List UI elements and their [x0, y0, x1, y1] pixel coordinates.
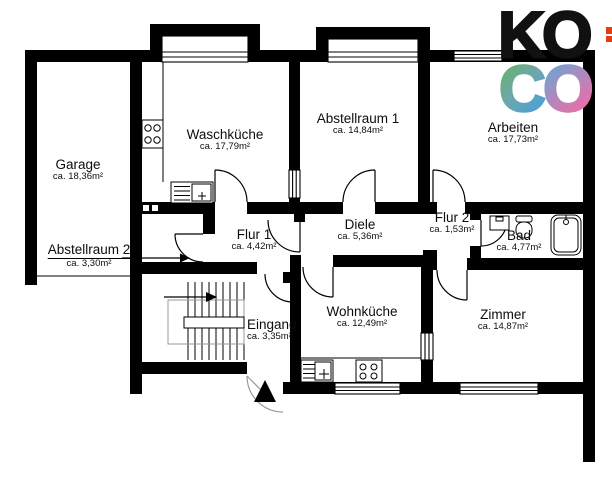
wall-top-garage: [25, 50, 162, 62]
wall-bay2-left: [316, 27, 328, 62]
room-name: Arbeiten: [488, 121, 538, 135]
room-label-arbeiten: Arbeiten ca. 17,73m²: [488, 121, 538, 146]
room-name: Bad: [497, 229, 542, 243]
wall-corridor-north-b: [247, 202, 343, 214]
room-name: Abstellraum 1: [317, 112, 400, 126]
logo-letter-c: C: [499, 52, 545, 125]
room-label-bad: Bad ca. 4,77m²: [497, 229, 542, 254]
wall-wohnkueche-north-a: [290, 255, 301, 267]
window-abstellraum1-bay: [328, 39, 418, 62]
room-label-zimmer: Zimmer ca. 14,87m²: [478, 308, 528, 333]
windows: [162, 36, 538, 394]
stairs-landing-bar: [184, 317, 244, 328]
wall-stairs-south: [140, 362, 247, 374]
wall-flur1-south: [130, 262, 257, 274]
room-label-flur-2: Flur 2 ca. 1,53m²: [430, 211, 475, 236]
bad-bathtub-icon: [551, 215, 581, 255]
wall-corridor-north-a: [130, 202, 215, 214]
door-zimmer: [437, 270, 467, 300]
room-label-eingang: Eingang ca. 3,35m²: [247, 318, 297, 343]
entrance-arrow: [254, 380, 276, 402]
window-zimmer: [460, 383, 538, 394]
wall-zimmer-north: [467, 258, 583, 270]
window-wohnkueche-zimmer-wall: [421, 333, 433, 360]
wall-bad-north: [465, 202, 583, 214]
wall-bay2-top: [316, 27, 430, 39]
room-name: Wohnküche: [326, 305, 397, 319]
room-area: ca. 17,73m²: [488, 135, 538, 146]
wall-garage-house: [130, 62, 142, 394]
room-area: ca. 12,49m²: [326, 319, 397, 330]
wall-left-garage: [25, 50, 37, 285]
room-area: ca. 4,77m²: [497, 243, 542, 254]
room-name: Waschküche: [187, 128, 264, 142]
floorplan-page: KO C O Garage ca. 18,36m² Waschküche ca.…: [0, 0, 612, 487]
room-area: ca. 3,35m²: [247, 332, 297, 343]
edge-red-mark: [606, 27, 612, 42]
wall-corridor-north-c: [375, 202, 437, 214]
wall-bottom: [283, 382, 595, 394]
window-waschkueche-bay: [162, 36, 248, 62]
room-label-garage: Garage ca. 18,36m²: [53, 158, 103, 183]
room-name: Abstellraum 2: [48, 243, 131, 259]
room-name: Eingang: [247, 318, 297, 332]
room-area: ca. 18,36m²: [53, 172, 103, 183]
koco-logo: KO C O: [498, 0, 591, 125]
room-name: Flur 2: [430, 211, 475, 225]
door-wohnkueche: [303, 267, 333, 297]
window-diele-wall: [289, 170, 300, 198]
stairs: [164, 282, 244, 360]
window-arbeiten: [454, 51, 502, 61]
wall-abstellraum1-arbeiten: [418, 62, 430, 214]
room-label-abstellraum-1: Abstellraum 1 ca. 14,84m²: [317, 112, 400, 137]
wall-abstellraum2-stub: [203, 214, 215, 234]
room-area: ca. 14,87m²: [478, 322, 528, 333]
room-name: Zimmer: [478, 308, 528, 322]
wohnkueche-sink-icon: [301, 360, 333, 382]
room-area: ca. 5,36m²: [338, 232, 383, 243]
room-area: ca. 1,53m²: [430, 225, 475, 236]
room-name: Garage: [53, 158, 103, 172]
wall-chimney-bump: [283, 272, 290, 283]
room-label-flur-1: Flur 1 ca. 4,42m²: [232, 228, 277, 253]
room-name: Flur 1: [232, 228, 277, 242]
door-arbeiten: [433, 170, 465, 202]
wall-bay1-left: [150, 24, 162, 62]
wall-wohnkueche-north-b: [333, 255, 437, 267]
window-wohnkueche: [335, 383, 400, 394]
wall-bay1-top: [150, 24, 260, 36]
room-area: ca. 3,30m²: [48, 259, 131, 270]
room-area: ca. 14,84m²: [317, 126, 400, 137]
room-label-abstellraum-2: Abstellraum 2 ca. 3,30m²: [48, 243, 131, 270]
room-label-diele: Diele ca. 5,36m²: [338, 218, 383, 243]
door-abstellraum1: [343, 170, 375, 202]
door-waschkueche: [215, 170, 247, 202]
wohnkueche-stove-icon: [356, 360, 382, 382]
wall-wohnkueche-zimmer: [421, 267, 433, 382]
waschkueche-stove-icon: [142, 120, 163, 148]
room-name: Diele: [338, 218, 383, 232]
room-label-wohnkueche: Wohnküche ca. 12,49m²: [326, 305, 397, 330]
wall-flur2-bad-b: [470, 246, 481, 258]
entrance-door: [247, 376, 283, 412]
room-area: ca. 4,42m²: [232, 242, 277, 253]
room-area: ca. 17,79m²: [187, 142, 264, 153]
waschkueche-sink-icon: [171, 182, 213, 203]
logo-letter-o: O: [543, 52, 591, 125]
room-label-waschkueche: Waschküche ca. 17,79m²: [187, 128, 264, 153]
